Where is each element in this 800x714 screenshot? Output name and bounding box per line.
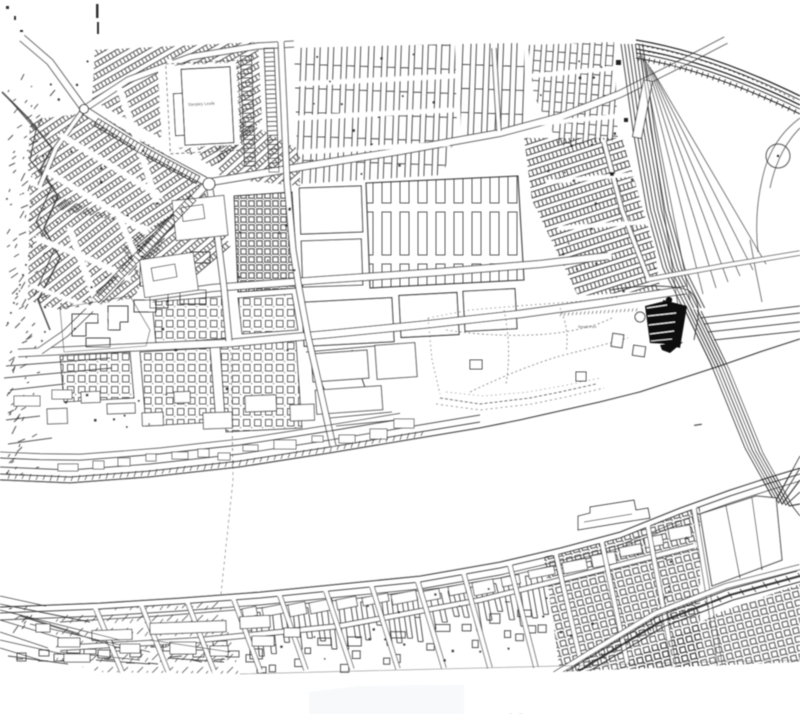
svg-text:Smuth Fex: Smuth Fex	[578, 325, 596, 329]
